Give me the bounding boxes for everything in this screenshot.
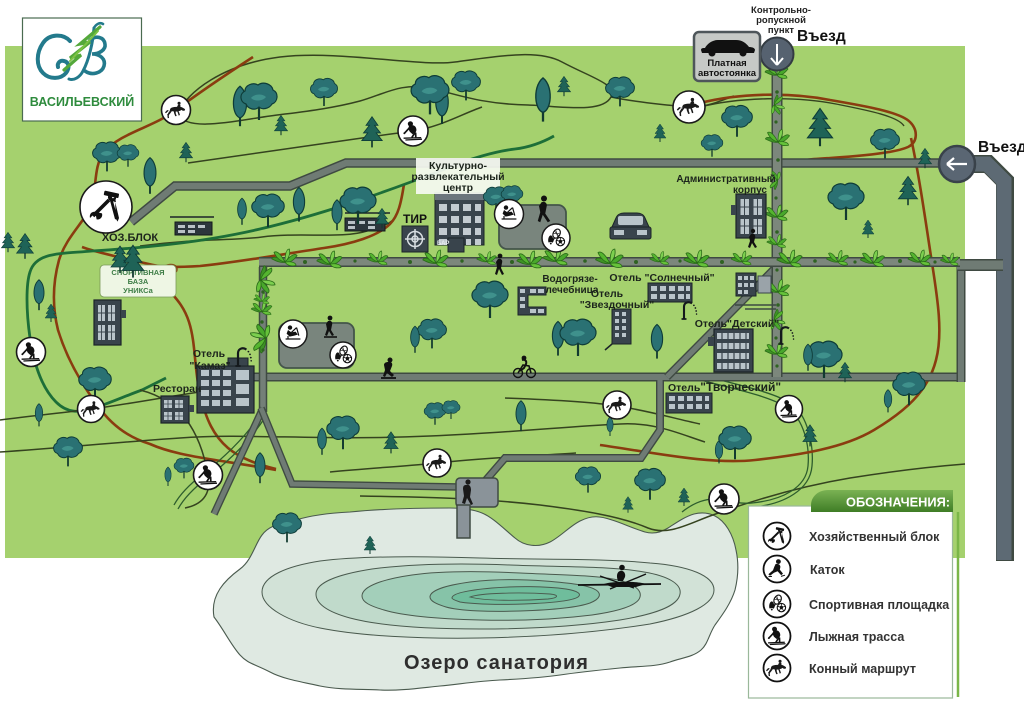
svg-text:Озеро санатория: Озеро санатория	[404, 652, 589, 674]
svg-text:Отель"Детский": Отель"Детский"	[695, 318, 780, 330]
svg-text:БАР: БАР	[437, 241, 449, 247]
svg-text:автостоянка: автостоянка	[698, 68, 757, 79]
svg-text:"Звездочный": "Звездочный"	[580, 299, 655, 311]
svg-text:Лыжная трасса: Лыжная трасса	[809, 630, 905, 644]
svg-text:ВАСИЛЬЕВСКИЙ: ВАСИЛЬЕВСКИЙ	[30, 94, 134, 109]
svg-text:Конный маршрут: Конный маршрут	[809, 662, 916, 676]
svg-text:Ресторан: Ресторан	[153, 383, 201, 395]
svg-text:пункт: пункт	[768, 25, 795, 36]
svg-text:"Камаз": "Камаз"	[189, 360, 230, 372]
svg-text:ХОЗ.БЛОК: ХОЗ.БЛОК	[102, 232, 158, 244]
svg-text:Въезд: Въезд	[978, 139, 1024, 156]
svg-text:Въезд: Въезд	[797, 28, 846, 45]
svg-text:Отель"Творческий": Отель"Творческий"	[668, 380, 781, 394]
svg-text:Хозяйственный блок: Хозяйственный блок	[809, 530, 940, 544]
svg-text:ТИР: ТИР	[403, 212, 427, 226]
svg-text:Отель: Отель	[193, 348, 226, 360]
svg-text:Отель "Солнечный": Отель "Солнечный"	[609, 272, 714, 284]
svg-text:Водогрязе-: Водогрязе-	[542, 274, 597, 285]
svg-text:Спортивная площадка: Спортивная площадка	[809, 598, 950, 612]
svg-text:Каток: Каток	[810, 563, 845, 577]
svg-text:корпус: корпус	[733, 185, 767, 196]
svg-text:центр: центр	[443, 182, 473, 194]
svg-text:ОБОЗНАЧЕНИЯ:: ОБОЗНАЧЕНИЯ:	[846, 495, 950, 510]
svg-text:Административный: Административный	[676, 174, 775, 185]
svg-text:УНИКСа: УНИКСа	[123, 286, 153, 295]
svg-text:БАЗА: БАЗА	[128, 277, 149, 286]
